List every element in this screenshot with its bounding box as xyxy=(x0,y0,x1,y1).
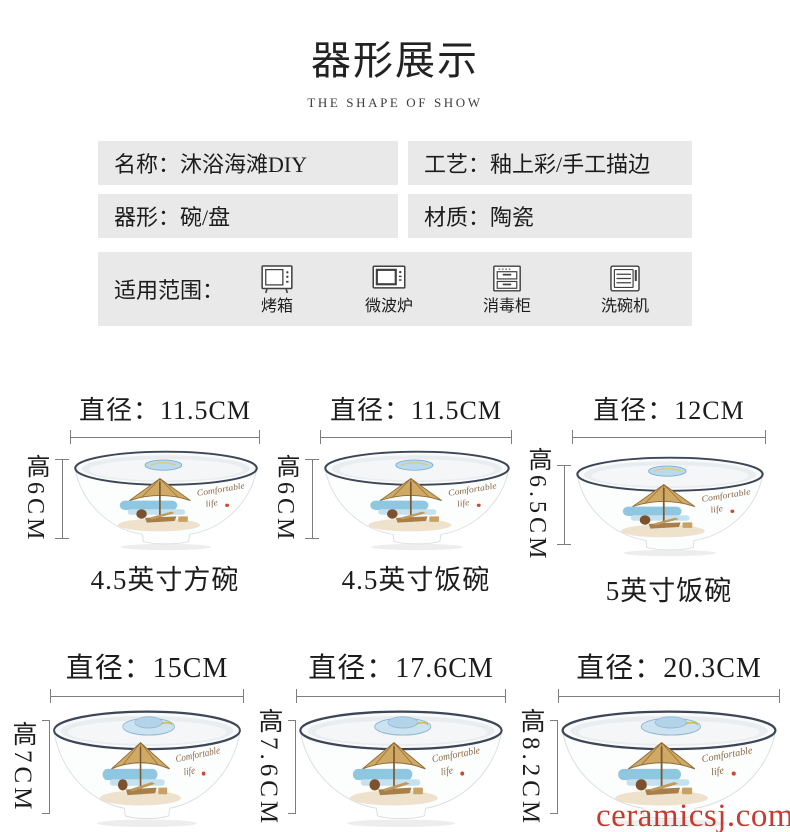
spec-value-material: 陶瓷 xyxy=(490,200,534,232)
bowl-card-5inch-rice: 直径：12CM 高6.5CM 5英寸饭碗 xyxy=(520,390,774,608)
diameter-label: 直径：12CM xyxy=(572,390,766,427)
height-label: 高6CM xyxy=(268,454,303,543)
bowl-name: 4.5英寸饭碗 xyxy=(320,558,512,597)
spec-value-shape: 碗/盘 xyxy=(180,200,230,232)
spec-label-craft: 工艺： xyxy=(424,147,490,179)
bowl-illustration xyxy=(296,706,506,828)
height-measure-line xyxy=(288,720,296,814)
spec-value-name: 沐浴海滩DIY xyxy=(180,147,307,179)
applicable-range-label: 适用范围： xyxy=(114,273,224,305)
bowl-card-6inch-noodle: 直径：15CM 高7CM 6英寸面碗 xyxy=(4,646,250,832)
height-measure-line xyxy=(557,465,571,545)
spec-label-name: 名称： xyxy=(114,147,180,179)
height-measure-line xyxy=(550,720,558,814)
bowl-illustration xyxy=(320,447,514,551)
height-label: 高6CM xyxy=(18,454,53,543)
sterilizer-cabinet-icon xyxy=(490,263,524,296)
range-item-label: 微波炉 xyxy=(365,299,413,315)
height-measure-line xyxy=(42,720,50,814)
watermark: ceramicsj.com xyxy=(596,798,790,832)
header: 器形展示 THE SHAPE OF SHOW xyxy=(0,0,790,111)
spec-cell-shape: 器形：碗/盘 xyxy=(98,194,398,238)
range-item-sterilizer: 消毒柜 xyxy=(483,263,531,315)
spec-cell-craft: 工艺：釉上彩/手工描边 xyxy=(408,141,692,185)
product-shape-showcase: Comfortable life xyxy=(0,0,790,832)
spec-cell-name: 名称：沐浴海滩DIY xyxy=(98,141,398,185)
range-item-label: 烤箱 xyxy=(261,299,293,315)
bowl-illustration xyxy=(70,447,262,551)
height-measure-line xyxy=(305,459,319,539)
diameter-measure-line xyxy=(70,430,260,444)
page-subtitle: THE SHAPE OF SHOW xyxy=(0,95,790,111)
oven-icon xyxy=(259,263,295,296)
diameter-measure-line xyxy=(558,689,780,703)
diameter-measure-line xyxy=(50,689,244,703)
range-item-microwave: 微波炉 xyxy=(365,263,413,315)
height-label: 高7.6CM xyxy=(250,708,286,827)
bowls-row-1: 直径：11.5CM 高6CM 4.5英寸方碗 直径：11.5CM xyxy=(0,390,790,608)
dishwasher-icon xyxy=(608,263,642,296)
bowl-name: 4.5英寸方碗 xyxy=(70,558,260,597)
spec-label-shape: 器形： xyxy=(114,200,180,232)
bowl-card-7inch-soup: 直径：17.6CM 高7.6CM 7英寸汤碗 xyxy=(250,646,512,832)
height-measure-line xyxy=(55,459,69,539)
bowl-card-4-5inch-square: 直径：11.5CM 高6CM 4.5英寸方碗 xyxy=(18,390,268,608)
bowl-illustration xyxy=(572,453,768,557)
spec-table: 名称：沐浴海滩DIY 工艺：釉上彩/手工描边 器形：碗/盘 材质：陶瓷 适用范围… xyxy=(98,141,692,326)
spec-label-material: 材质： xyxy=(424,200,490,232)
diameter-measure-line xyxy=(572,430,766,444)
range-item-dishwasher: 洗碗机 xyxy=(601,263,649,315)
diameter-label: 直径：11.5CM xyxy=(70,390,260,427)
diameter-label: 直径：15CM xyxy=(50,646,244,686)
spec-cell-material: 材质：陶瓷 xyxy=(408,194,692,238)
bowl-illustration xyxy=(50,706,244,828)
diameter-label: 直径：11.5CM xyxy=(320,390,512,427)
diameter-measure-line xyxy=(320,430,512,444)
diameter-label: 直径：20.3CM xyxy=(558,646,780,686)
applicable-range-row: 适用范围： 烤箱 xyxy=(98,252,692,326)
bowl-name: 5英寸饭碗 xyxy=(572,569,766,608)
height-label: 高8.2CM xyxy=(512,708,548,827)
diameter-label: 直径：17.6CM xyxy=(296,646,506,686)
height-label: 高6.5CM xyxy=(520,447,555,562)
range-item-label: 消毒柜 xyxy=(483,299,531,315)
height-label: 高7CM xyxy=(4,721,40,813)
microwave-icon xyxy=(371,263,407,296)
range-item-label: 洗碗机 xyxy=(601,299,649,315)
spec-value-craft: 釉上彩/手工描边 xyxy=(490,147,650,179)
bowl-card-4-5inch-rice: 直径：11.5CM 高6CM 4.5英寸饭碗 xyxy=(268,390,520,608)
page-title: 器形展示 xyxy=(0,28,790,86)
range-item-oven: 烤箱 xyxy=(259,263,295,315)
diameter-measure-line xyxy=(296,689,506,703)
